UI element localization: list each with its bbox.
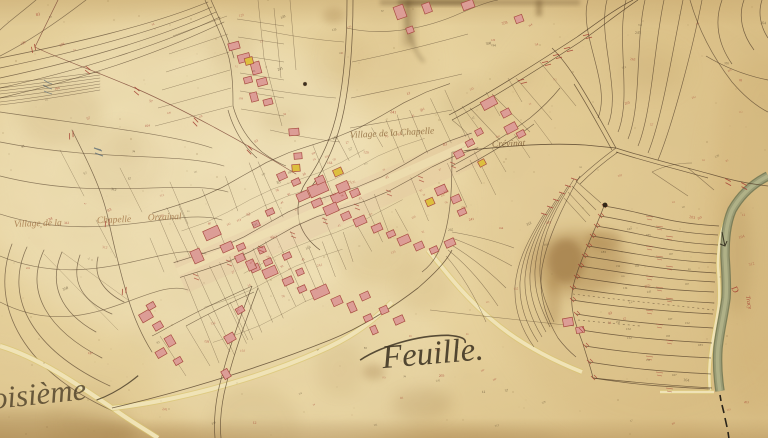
svg-text:152: 152 xyxy=(626,327,631,331)
svg-text:167: 167 xyxy=(668,317,673,321)
svg-text:167: 167 xyxy=(672,373,677,377)
svg-text:183: 183 xyxy=(601,250,606,254)
svg-text:183: 183 xyxy=(698,343,703,347)
svg-text:265: 265 xyxy=(630,57,636,62)
svg-text:358: 358 xyxy=(724,61,730,65)
svg-text:241: 241 xyxy=(162,407,168,412)
svg-text:164: 164 xyxy=(240,349,246,353)
svg-text:Village de la: Village de la xyxy=(14,218,62,230)
svg-text:164: 164 xyxy=(145,123,151,128)
svg-text:312: 312 xyxy=(102,245,108,250)
svg-text:83: 83 xyxy=(442,141,447,147)
svg-text:152: 152 xyxy=(627,336,632,340)
svg-text:83: 83 xyxy=(35,11,40,17)
svg-text:203: 203 xyxy=(689,214,696,220)
svg-text:129: 129 xyxy=(491,39,496,42)
svg-text:241: 241 xyxy=(635,30,641,35)
svg-text:164: 164 xyxy=(327,161,333,165)
svg-text:34: 34 xyxy=(283,112,287,116)
svg-text:164: 164 xyxy=(491,43,497,48)
svg-text:312: 312 xyxy=(64,221,69,225)
svg-text:187: 187 xyxy=(88,351,93,355)
svg-text:34: 34 xyxy=(608,321,612,325)
svg-text:265: 265 xyxy=(439,373,445,378)
svg-text:134: 134 xyxy=(623,286,628,290)
svg-text:Orzainal: Orzainal xyxy=(148,212,182,223)
svg-text:83: 83 xyxy=(400,396,404,400)
svg-text:Crévinat: Crévinat xyxy=(492,139,526,150)
svg-text:183: 183 xyxy=(646,233,651,237)
svg-text:164: 164 xyxy=(499,227,504,230)
svg-text:203: 203 xyxy=(744,400,749,404)
svg-text:164: 164 xyxy=(760,20,766,25)
svg-text:203: 203 xyxy=(26,267,31,270)
svg-text:152: 152 xyxy=(685,321,690,325)
svg-text:57: 57 xyxy=(650,123,654,127)
svg-text:12: 12 xyxy=(253,421,257,425)
svg-text:265: 265 xyxy=(448,228,454,232)
svg-text:241: 241 xyxy=(390,109,397,115)
svg-text:12: 12 xyxy=(482,390,486,394)
svg-text:Chapelle: Chapelle xyxy=(97,215,132,226)
